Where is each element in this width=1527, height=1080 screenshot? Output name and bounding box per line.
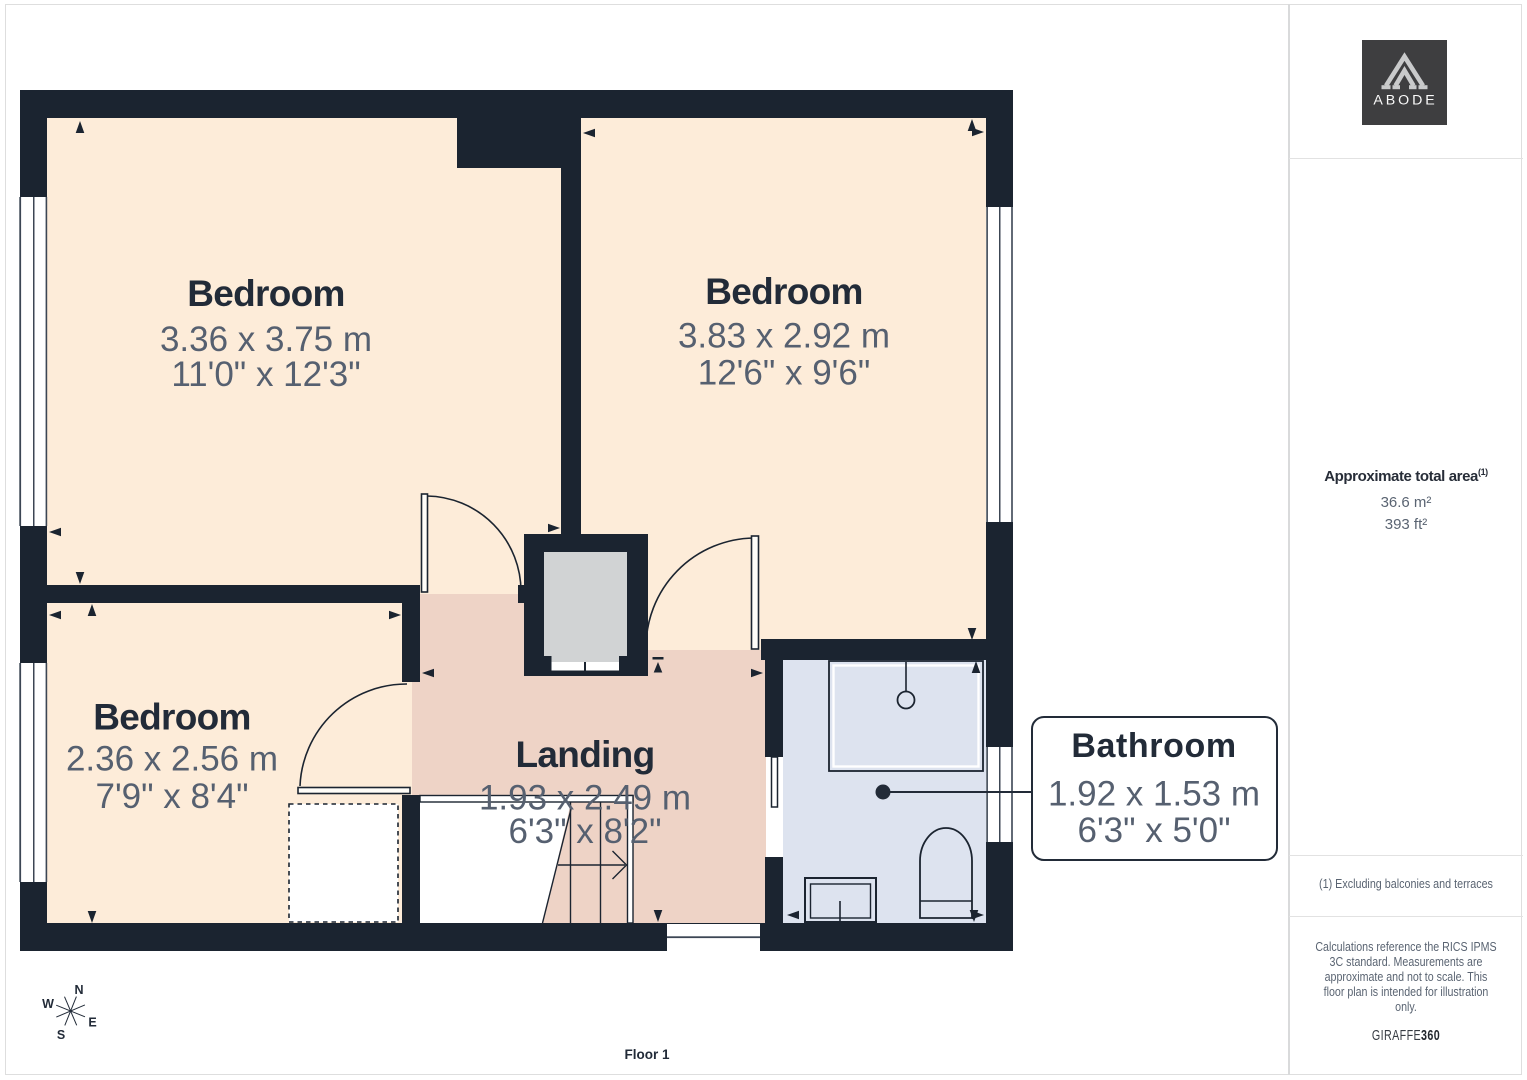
svg-text:Bathroom: Bathroom [1071,727,1236,765]
svg-text:Bedroom: Bedroom [93,697,251,738]
svg-text:Bedroom: Bedroom [187,273,345,314]
svg-text:11'0" x 12'3": 11'0" x 12'3" [171,355,360,394]
svg-text:W: W [42,997,54,1011]
svg-text:Landing: Landing [516,734,655,775]
svg-text:3.83 x 2.92 m: 3.83 x 2.92 m [678,317,890,356]
svg-text:S: S [57,1028,65,1042]
svg-text:N: N [74,983,83,997]
svg-text:6'3" x 8'2": 6'3" x 8'2" [508,812,661,851]
svg-text:E: E [88,1016,96,1030]
svg-text:Bedroom: Bedroom [705,271,863,312]
svg-text:3.36 x 3.75 m: 3.36 x 3.75 m [160,320,372,359]
svg-text:1.92 x 1.53 m: 1.92 x 1.53 m [1048,775,1260,814]
svg-text:ABODE: ABODE [1373,92,1437,108]
svg-text:Floor 1: Floor 1 [624,1047,669,1062]
svg-text:6'3" x 5'0": 6'3" x 5'0" [1077,811,1230,850]
svg-text:12'6" x 9'6": 12'6" x 9'6" [698,354,871,393]
svg-text:7'9" x 8'4": 7'9" x 8'4" [95,777,248,816]
svg-text:2.36 x 2.56 m: 2.36 x 2.56 m [66,740,278,779]
